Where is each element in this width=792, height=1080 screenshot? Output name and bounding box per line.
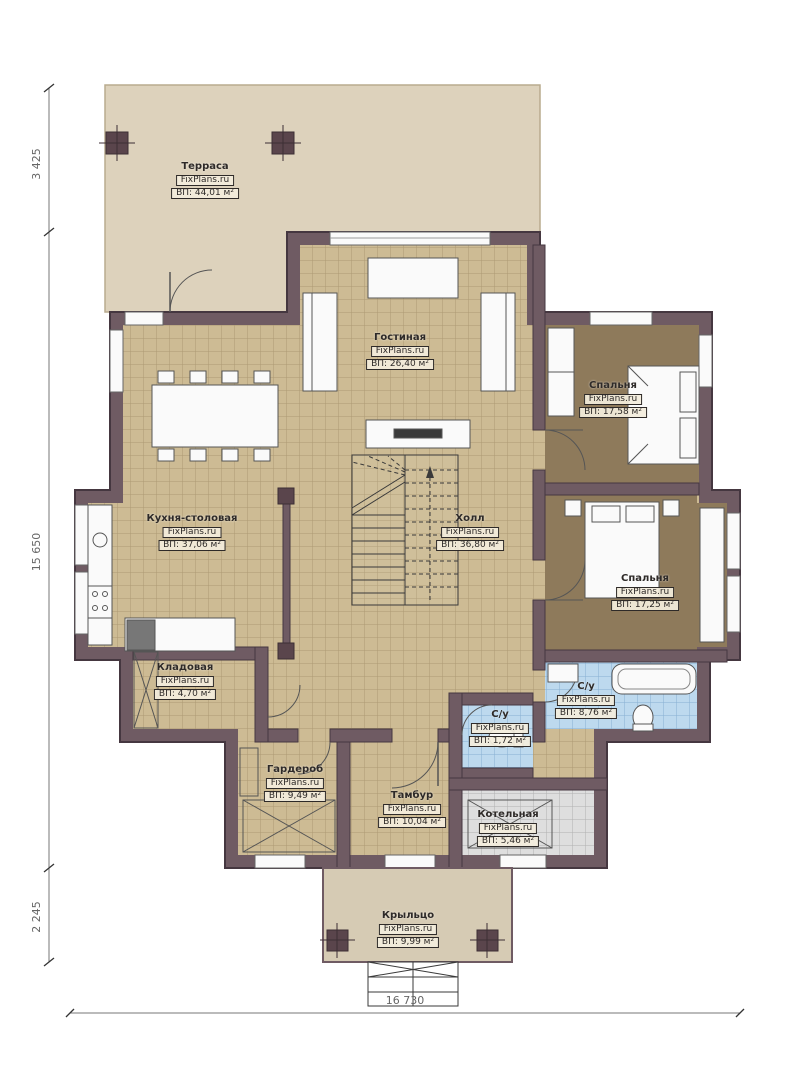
room-label-bath1: С/у FixPlans.ru ВП: 8,76 м²: [555, 682, 617, 719]
fridge: [127, 620, 155, 650]
room-label-hall: Холл FixPlans.ru ВП: 36,80 м²: [436, 514, 504, 551]
room-name: Тамбур: [378, 791, 446, 802]
room-label-porch: Крыльцо FixPlans.ru ВП: 9,99 м²: [377, 911, 439, 948]
brand-badge: FixPlans.ru: [266, 778, 324, 789]
room-area: ВП: 9,99 м²: [377, 937, 439, 948]
room-name: Холл: [436, 514, 504, 525]
dim-left-middle: 15 650: [30, 533, 43, 572]
room-label-bedroom1: Спальня FixPlans.ru ВП: 17,58 м²: [579, 381, 647, 418]
brand-badge: FixPlans.ru: [471, 723, 529, 734]
dim-bottom: 16 730: [386, 994, 425, 1007]
window-seat: [700, 508, 724, 642]
room-name: Гардероб: [264, 765, 326, 776]
dim-left-bottom: 2 245: [30, 901, 43, 933]
dining-table: [152, 385, 278, 447]
room-area: ВП: 10,04 м²: [378, 817, 446, 828]
room-label-living: Гостиная FixPlans.ru ВП: 26,40 м²: [366, 333, 434, 370]
room-name: Спальня: [579, 381, 647, 392]
room-name: С/у: [555, 682, 617, 693]
sofa: [481, 293, 515, 391]
room-name: Котельная: [477, 810, 539, 821]
room-label-kitchen: Кухня-столовая FixPlans.ru ВП: 37,06 м²: [147, 514, 238, 551]
brand-badge: FixPlans.ru: [156, 676, 214, 687]
brand-badge: FixPlans.ru: [379, 924, 437, 935]
room-area: ВП: 36,80 м²: [436, 540, 504, 551]
brand-badge: FixPlans.ru: [383, 804, 441, 815]
room-label-bedroom2: Спальня FixPlans.ru ВП: 17,25 м²: [611, 574, 679, 611]
floor-plan: 3 425 15 650 2 245 16 730 Терраса FixPla…: [0, 0, 792, 1080]
brand-badge: FixPlans.ru: [557, 695, 615, 706]
room-area: ВП: 44,01 м²: [171, 188, 239, 199]
room-area: ВП: 4,70 м²: [154, 689, 216, 700]
room-area: ВП: 1,72 м²: [469, 736, 531, 747]
brand-badge: FixPlans.ru: [176, 175, 234, 186]
room-name: Спальня: [611, 574, 679, 585]
room-label-pantry: Кладовая FixPlans.ru ВП: 4,70 м²: [154, 663, 216, 700]
brand-badge: FixPlans.ru: [441, 527, 499, 538]
room-area: ВП: 26,40 м²: [366, 359, 434, 370]
room-area: ВП: 5,46 м²: [477, 836, 539, 847]
room-name: С/у: [469, 710, 531, 721]
room-name: Кухня-столовая: [147, 514, 238, 525]
bath-sink: [548, 664, 578, 682]
sofa: [303, 293, 337, 391]
room-name: Крыльцо: [377, 911, 439, 922]
room-label-bath2: С/у FixPlans.ru ВП: 1,72 м²: [469, 710, 531, 747]
brand-badge: FixPlans.ru: [616, 587, 674, 598]
brand-badge: FixPlans.ru: [479, 823, 537, 834]
room-area: ВП: 8,76 м²: [555, 708, 617, 719]
brand-badge: FixPlans.ru: [371, 346, 429, 357]
coffee-table: [368, 258, 458, 298]
room-area: ВП: 9,49 м²: [264, 791, 326, 802]
room-area: ВП: 17,25 м²: [611, 600, 679, 611]
dim-left-top: 3 425: [30, 148, 43, 180]
room-area: ВП: 17,58 м²: [579, 407, 647, 418]
stove: [88, 586, 112, 618]
room-area: ВП: 37,06 м²: [158, 540, 226, 551]
tv: [394, 429, 442, 438]
brand-badge: FixPlans.ru: [163, 527, 221, 538]
room-name: Гостиная: [366, 333, 434, 344]
room-label-wardrobe: Гардероб FixPlans.ru ВП: 9,49 м²: [264, 765, 326, 802]
kitchen-counter: [88, 505, 112, 645]
room-name: Терраса: [171, 162, 239, 173]
brand-badge: FixPlans.ru: [584, 394, 642, 405]
room-label-terrace: Терраса FixPlans.ru ВП: 44,01 м²: [171, 162, 239, 199]
room-label-vestibule: Тамбур FixPlans.ru ВП: 10,04 м²: [378, 791, 446, 828]
room-label-boiler: Котельная FixPlans.ru ВП: 5,46 м²: [477, 810, 539, 847]
room-name: Кладовая: [154, 663, 216, 674]
